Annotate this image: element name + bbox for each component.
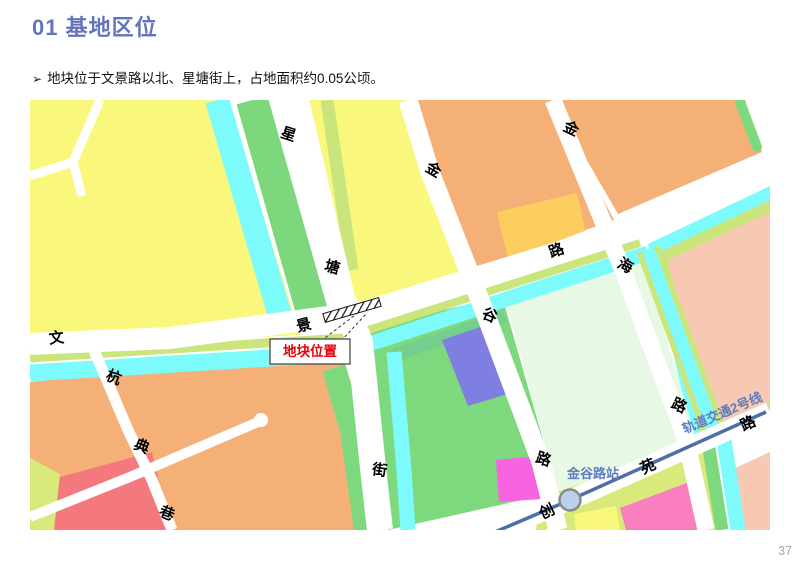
metro-station-marker (560, 490, 581, 511)
slide: 01 基地区位 ➢地块位于文景路以北、星塘街上，占地面积约0.05公顷。 (0, 0, 800, 566)
road-deadend-cap (254, 413, 268, 427)
road-label-wenjing-road: 文 (48, 328, 66, 348)
road-label-xingtang-street: 街 (370, 460, 388, 480)
station-label: 金谷路站 (566, 466, 619, 481)
site-callout-label: 地块位置 (283, 343, 337, 359)
page-number: 37 (778, 544, 792, 558)
location-map: 地块位置 金谷路站 轨道交通2号线 星塘街文景路金谷路金海路杭典巷创苑路 (0, 0, 800, 566)
